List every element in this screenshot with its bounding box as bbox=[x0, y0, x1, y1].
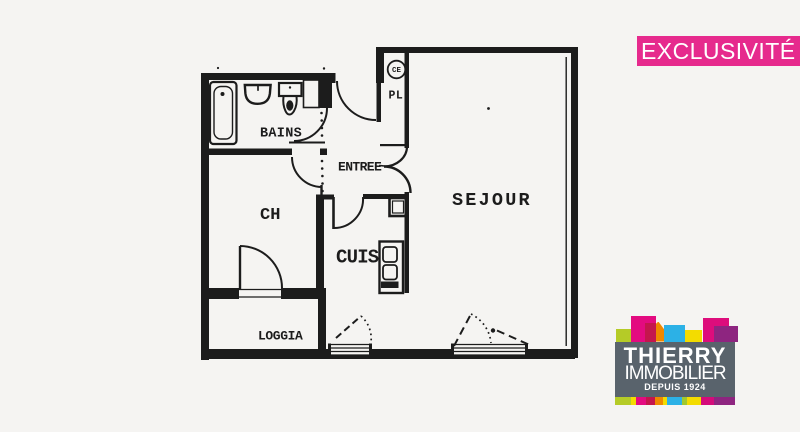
svg-text:BAINS: BAINS bbox=[260, 127, 302, 142]
svg-text:SEJOUR: SEJOUR bbox=[452, 190, 532, 211]
svg-text:CH: CH bbox=[260, 206, 280, 225]
svg-text:CE: CE bbox=[392, 67, 402, 75]
svg-text:LOGGIA: LOGGIA bbox=[258, 329, 303, 344]
svg-text:PL: PL bbox=[389, 90, 404, 103]
svg-text:ENTREE: ENTREE bbox=[338, 160, 382, 175]
svg-text:CUIS: CUIS bbox=[336, 247, 379, 269]
